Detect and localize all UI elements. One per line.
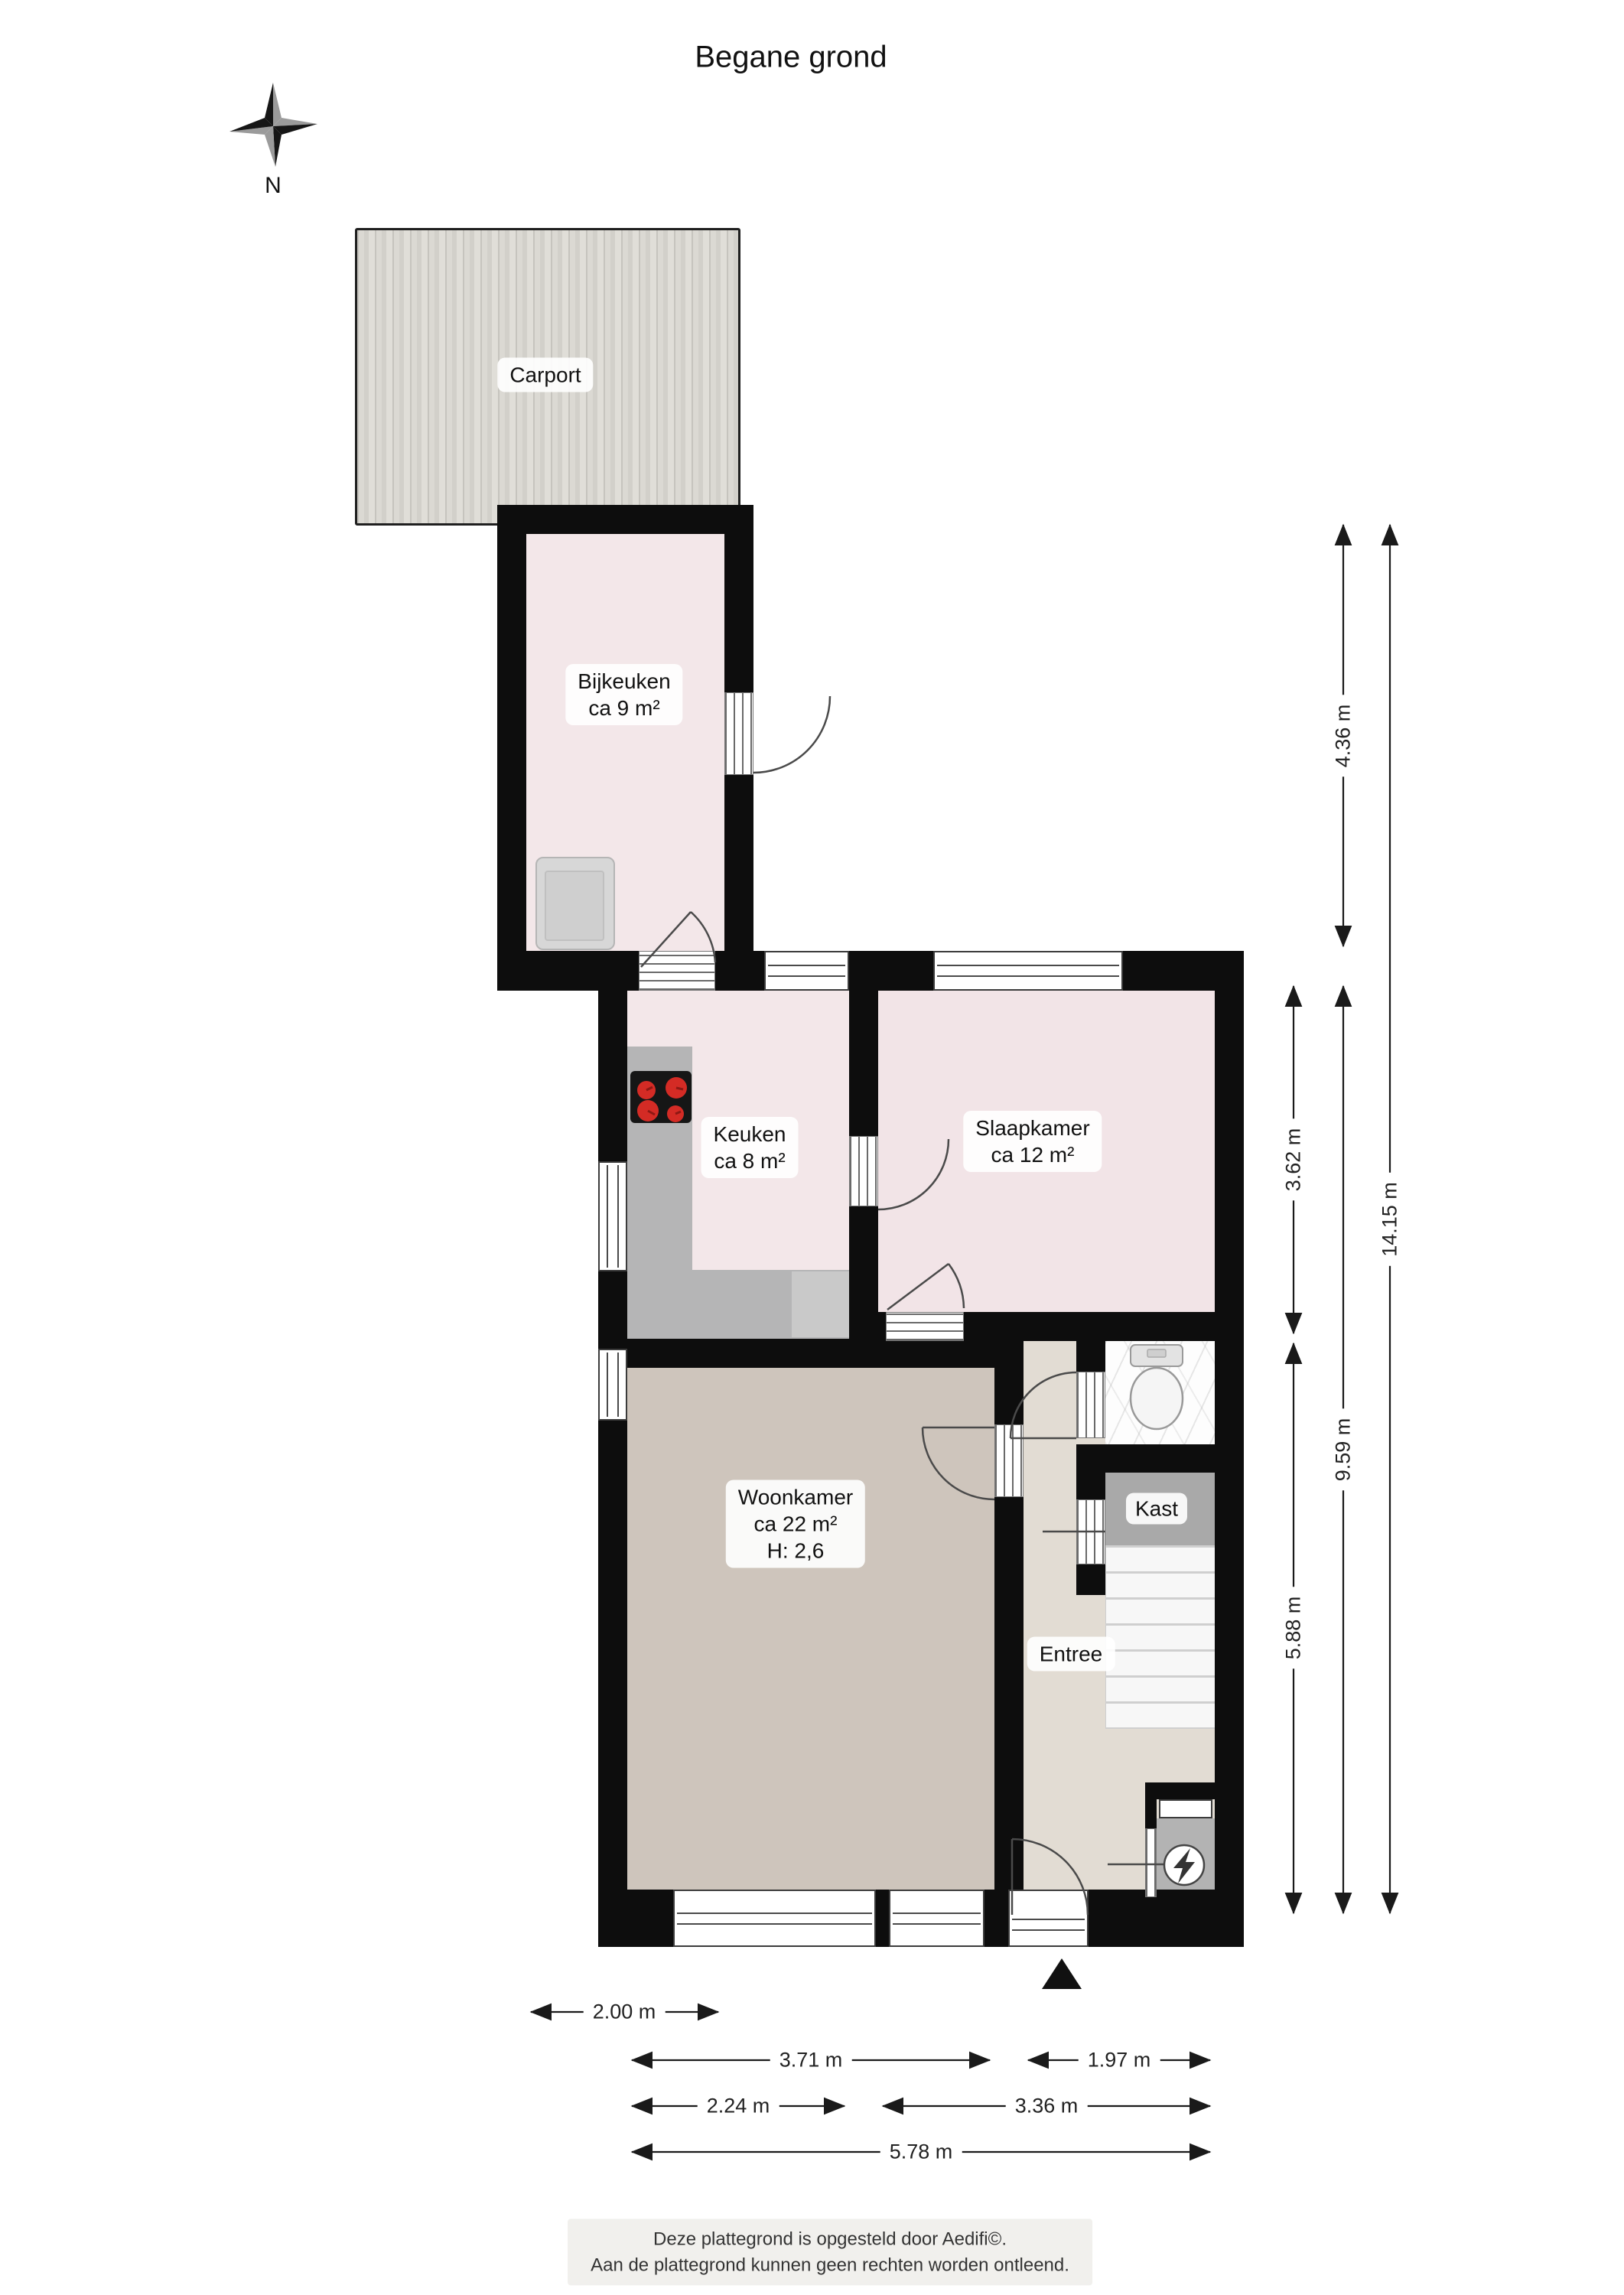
wall — [984, 1890, 1008, 1947]
dim-keuken-width: 2.24 m — [698, 2094, 779, 2119]
room-name: Woonkamer — [738, 1484, 853, 1511]
bijkeuken-label: Bijkeuken ca 9 m² — [565, 664, 682, 725]
kast-label: Kast — [1126, 1493, 1187, 1525]
room-area: ca 12 m² — [975, 1141, 1089, 1168]
woonkamer-label: Woonkamer ca 22 m² H: 2,6 — [726, 1480, 865, 1568]
window-glazing — [607, 1353, 619, 1417]
wall — [994, 1368, 1024, 1424]
keuken-label: Keuken ca 8 m² — [701, 1117, 799, 1178]
bijkeuken-exterior-door-arc — [753, 696, 830, 773]
cooktop — [630, 1071, 692, 1123]
woonkamer-bottom-window-left — [673, 1890, 876, 1947]
room-name: Slaapkamer — [975, 1115, 1089, 1141]
window-glazing — [768, 965, 845, 977]
wall — [1076, 1341, 1105, 1372]
dim-entree-width: 1.97 m — [1079, 2048, 1160, 2073]
keuken-top-window — [764, 951, 849, 991]
keuken-slaapkamer-door-sill — [849, 1136, 878, 1206]
toilet-floor — [1105, 1341, 1215, 1444]
footer-line-1: Deze plattegrond is opgesteld door Aedif… — [591, 2226, 1069, 2252]
dim-woonkamer-width: 3.71 m — [770, 2048, 852, 2073]
window-glazing — [607, 1165, 619, 1268]
room-name: Keuken — [714, 1121, 786, 1147]
dim-bijkeuken-height: 4.36 m — [1331, 695, 1356, 777]
footer-line-2: Aan de plattegrond kunnen geen rechten w… — [591, 2252, 1069, 2278]
entree-label: Entree — [1027, 1637, 1115, 1672]
window-mullion — [876, 1890, 889, 1947]
meter-closet-door-sill — [1145, 1828, 1157, 1897]
wall — [1076, 1564, 1105, 1595]
window-glazing — [893, 1912, 981, 1925]
bijkeuken-keuken-door-sill — [639, 951, 715, 991]
wall — [598, 1890, 673, 1947]
wall — [724, 534, 753, 692]
room-ceiling-height: H: 2,6 — [738, 1538, 853, 1564]
meter-closet-wall — [1145, 1782, 1215, 1799]
carport-label: Carport — [497, 358, 593, 392]
window-glazing — [677, 1912, 872, 1925]
washing-machine-drum — [545, 871, 604, 941]
room-area: ca 9 m² — [578, 695, 670, 721]
wall — [1076, 1473, 1105, 1499]
wall — [1076, 1444, 1244, 1473]
entrance-marker-icon — [1042, 1958, 1082, 1989]
slaapkamer-hall-door-sill — [886, 1312, 964, 1341]
wall — [724, 775, 753, 951]
threshold-glazing — [1012, 1919, 1085, 1931]
washing-machine — [535, 857, 615, 950]
wall — [598, 1339, 1024, 1368]
woonkamer-entree-door-sill — [994, 1424, 1024, 1497]
meter-closet-panel — [1159, 1799, 1212, 1818]
dim-slaapkamer-width: 3.36 m — [1006, 2094, 1088, 2119]
dim-main-height: 9.59 m — [1331, 1409, 1356, 1491]
floorplan-page: Begane grond — [0, 0, 1624, 2295]
wall — [598, 991, 627, 1890]
wall — [497, 534, 526, 951]
dim-bijkeuken-width: 2.00 m — [584, 2000, 666, 2025]
compass-rose-icon — [229, 83, 317, 167]
room-area: ca 22 m² — [738, 1511, 853, 1538]
dim-total-width: 5.78 m — [880, 2140, 962, 2165]
slaapkamer-label: Slaapkamer ca 12 m² — [963, 1111, 1102, 1172]
kast-door-sill — [1076, 1499, 1105, 1564]
wall — [994, 1497, 1024, 1890]
kitchen-sink-counter — [792, 1271, 849, 1337]
footer-disclaimer: Deze plattegrond is opgesteld door Aedif… — [568, 2218, 1092, 2285]
slaapkamer-top-window — [933, 951, 1123, 991]
toilet-door-sill — [1076, 1372, 1105, 1438]
room-name: Bijkeuken — [578, 668, 670, 695]
staircase — [1105, 1545, 1216, 1729]
dim-slaapkamer-height: 3.62 m — [1281, 1119, 1307, 1201]
dim-woonkamer-height: 5.88 m — [1281, 1587, 1307, 1669]
compass-north-label: N — [265, 173, 282, 199]
dim-total-height: 14.15 m — [1378, 1173, 1403, 1266]
woonkamer-floor — [627, 1368, 994, 1890]
page-title: Begane grond — [695, 41, 887, 75]
wall — [1089, 1890, 1244, 1947]
window-glazing — [937, 965, 1119, 977]
meter-closet-wall — [1145, 1799, 1157, 1828]
woonkamer-left-window — [598, 1349, 627, 1421]
front-door-threshold — [1008, 1890, 1089, 1947]
bijkeuken-exterior-door-sill — [724, 692, 753, 775]
wall — [849, 991, 878, 1136]
keuken-left-window — [598, 1161, 627, 1271]
wall — [497, 951, 1244, 991]
woonkamer-bottom-window-right — [889, 1890, 984, 1947]
wall — [497, 505, 753, 534]
room-area: ca 8 m² — [714, 1147, 786, 1174]
